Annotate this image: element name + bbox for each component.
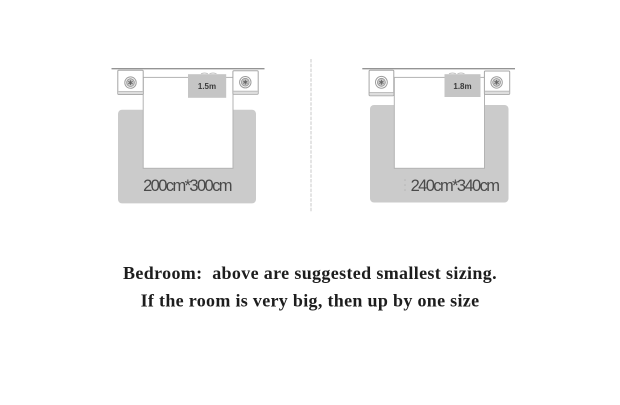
svg-text:Bedroom: above are suggested: Bedroom: above are suggested smallest si… xyxy=(123,263,497,283)
svg-text:If the room is very big, then: If the room is very big, then up by one … xyxy=(141,291,480,311)
svg-text:1.8m: 1.8m xyxy=(453,82,471,91)
svg-text:200cm*300cm: 200cm*300cm xyxy=(143,177,232,195)
svg-text:1.5m: 1.5m xyxy=(198,82,216,91)
svg-text:240cm*340cm: 240cm*340cm xyxy=(411,177,500,195)
